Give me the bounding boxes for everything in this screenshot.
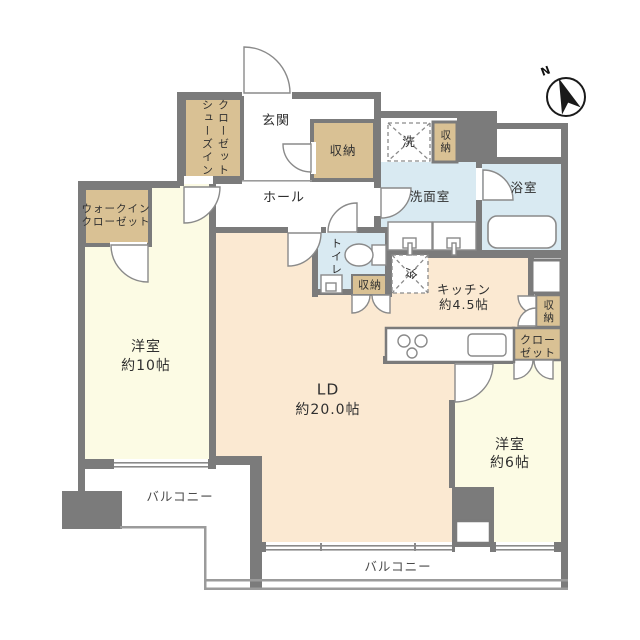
wall <box>476 157 561 164</box>
fridge-label: 冷 <box>404 267 417 281</box>
top-right-space <box>497 129 561 157</box>
bedroom6-name-label: 洋室 <box>495 438 525 452</box>
vanity <box>388 222 476 255</box>
window-line <box>496 545 554 547</box>
opening <box>288 227 321 233</box>
balcony-left-label: バルコニー <box>146 491 213 504</box>
opening <box>374 188 381 216</box>
living-dining-name-label: LD <box>317 382 340 398</box>
floor-plan: シューズイン クローゼット 玄関 収納 ホール 洗 収納 洗面室 浴室 ウォーク… <box>0 0 640 640</box>
vanity-stem <box>452 243 456 255</box>
entry-storage-label: 収納 <box>329 145 356 158</box>
wall <box>292 92 380 99</box>
wall <box>374 92 381 188</box>
wall <box>177 92 184 186</box>
walkin-closet-label-1: ウォークイン <box>82 204 151 215</box>
window-mullion <box>414 543 416 551</box>
shoe-closet-label-1: シューズイン <box>202 99 213 177</box>
wall <box>213 176 242 184</box>
kitchen-name-label: キッチン <box>437 284 491 297</box>
entrance-label: 玄関 <box>262 115 290 128</box>
bedroom10-name-label: 洋室 <box>131 340 161 354</box>
wall-right <box>561 123 568 590</box>
opening <box>311 142 316 174</box>
fence <box>204 588 568 591</box>
opening <box>476 168 482 200</box>
wall <box>216 227 288 233</box>
bathtub <box>488 216 556 248</box>
right-closet-label-2: ゼット <box>520 348 556 359</box>
balcony-wall-stub <box>62 491 122 529</box>
pipe-space-block <box>457 111 497 162</box>
right-closet-label-1: クロー <box>520 335 556 346</box>
washroom-label: 洗面室 <box>410 191 451 204</box>
wall-left <box>78 181 85 493</box>
balcony-bottom-label: バルコニー <box>364 561 431 574</box>
right-storage-label: 収納 <box>543 300 554 325</box>
pipe-space-box <box>532 260 561 293</box>
walkin-closet-label-2: クローゼット <box>82 217 151 228</box>
vanity-stem <box>408 243 412 255</box>
toilet-bowl <box>345 244 373 266</box>
wall <box>380 111 457 118</box>
living-dining-size-label: 約20.0帖 <box>295 403 360 417</box>
bedroom10-size-label: 約10帖 <box>121 359 171 373</box>
wall <box>476 200 482 254</box>
wash-storage-label: 収納 <box>440 130 451 155</box>
kitchen-counter <box>386 328 514 362</box>
bedroom6-size-label: 約6帖 <box>490 456 530 470</box>
window-line <box>114 466 208 468</box>
wall <box>209 456 262 465</box>
window-line <box>266 545 452 547</box>
entrance-door <box>244 47 290 93</box>
kitchen-sink <box>468 334 506 356</box>
window-mullion <box>320 543 322 551</box>
toilet-sink-basin <box>326 283 336 291</box>
opening <box>184 176 213 184</box>
window-line <box>266 549 452 551</box>
hall-label: ホール <box>263 192 305 205</box>
wall <box>494 123 568 129</box>
window-line <box>114 462 208 464</box>
wall <box>476 158 482 168</box>
toilet-label: トイレ <box>331 238 342 277</box>
wall <box>250 464 262 590</box>
window-line <box>496 549 554 551</box>
wall-divider <box>209 184 216 467</box>
wall <box>177 92 242 99</box>
toilet-tank <box>372 245 386 265</box>
wall <box>78 181 180 188</box>
fence <box>204 579 568 582</box>
entrance-step-line <box>242 180 312 182</box>
meter-box <box>456 521 490 543</box>
kitchen-size-label: 約4.5帖 <box>439 299 489 312</box>
shoe-closet-label-2: クローゼット <box>218 99 229 177</box>
living-dining-floor-lower <box>258 460 455 545</box>
washer-label: 洗 <box>402 136 416 149</box>
toilet-storage-label: 収納 <box>358 280 382 291</box>
wall <box>449 400 455 488</box>
fence <box>120 526 206 529</box>
compass <box>547 75 585 116</box>
bathroom-label: 浴室 <box>510 182 537 195</box>
